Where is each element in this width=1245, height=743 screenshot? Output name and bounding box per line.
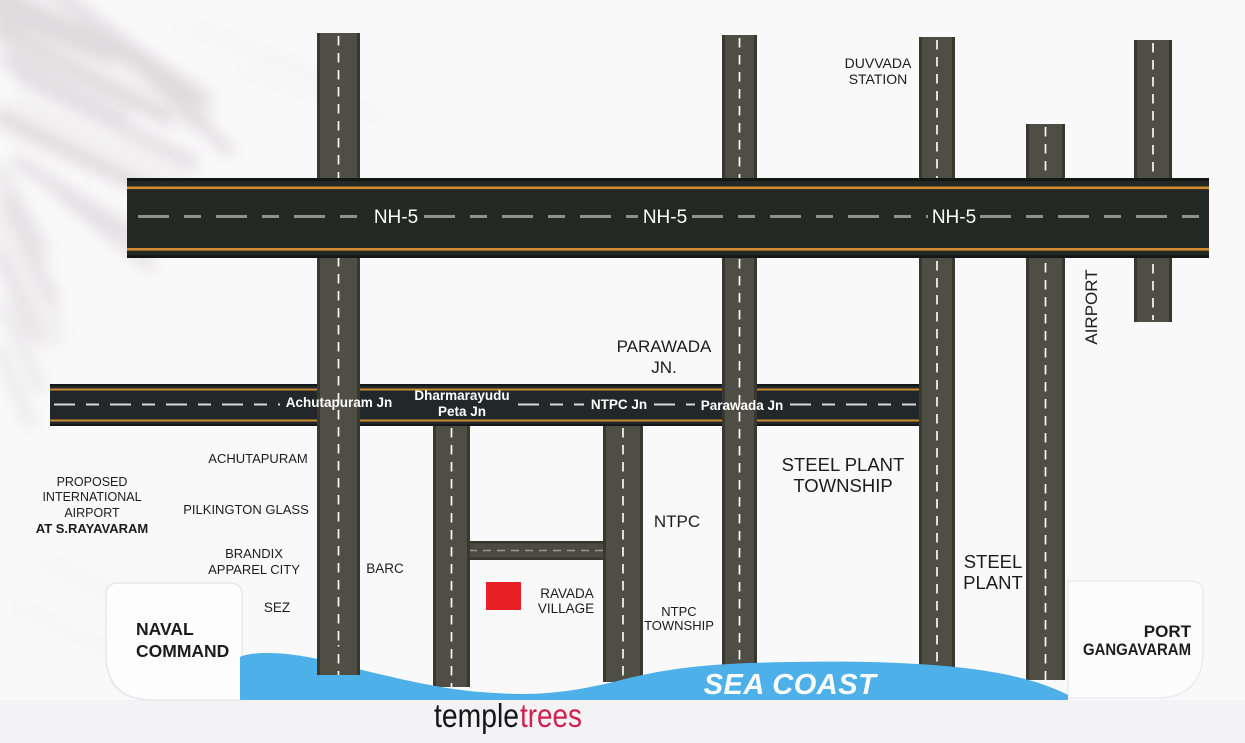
svg-text:INTERNATIONAL: INTERNATIONAL xyxy=(42,490,141,504)
svg-text:NH-5: NH-5 xyxy=(643,207,687,228)
svg-text:STEEL: STEEL xyxy=(964,551,1023,572)
svg-text:PILKINGTON GLASS: PILKINGTON GLASS xyxy=(183,502,309,517)
svg-text:SEZ: SEZ xyxy=(264,600,290,615)
svg-text:SEA COAST: SEA COAST xyxy=(704,669,878,701)
svg-text:NTPC Jn: NTPC Jn xyxy=(591,397,647,412)
svg-text:TOWNSHIP: TOWNSHIP xyxy=(644,618,714,633)
svg-text:NH-5: NH-5 xyxy=(374,207,418,228)
svg-text:STATION: STATION xyxy=(849,71,908,87)
svg-text:Peta Jn: Peta Jn xyxy=(438,404,486,419)
svg-text:VILLAGE: VILLAGE xyxy=(538,601,594,616)
svg-text:COMMAND: COMMAND xyxy=(136,641,229,661)
svg-text:PORT: PORT xyxy=(1144,622,1192,641)
svg-text:Parawada Jn: Parawada Jn xyxy=(701,398,784,413)
svg-text:NH-5: NH-5 xyxy=(932,207,976,228)
svg-text:BRANDIX: BRANDIX xyxy=(225,546,283,561)
svg-text:PARAWADA: PARAWADA xyxy=(617,337,712,356)
svg-text:PLANT: PLANT xyxy=(963,572,1023,593)
svg-text:AIRPORT: AIRPORT xyxy=(64,506,120,520)
svg-text:RAVADA: RAVADA xyxy=(540,586,594,601)
svg-text:trees: trees xyxy=(520,697,582,734)
svg-text:temple: temple xyxy=(434,697,519,734)
svg-text:JN.: JN. xyxy=(651,358,677,377)
svg-text:DUVVADA: DUVVADA xyxy=(845,55,912,71)
svg-text:NTPC: NTPC xyxy=(654,512,700,531)
svg-text:TOWNSHIP: TOWNSHIP xyxy=(793,475,892,496)
svg-text:ACHUTAPURAM: ACHUTAPURAM xyxy=(208,451,307,466)
svg-text:BARC: BARC xyxy=(366,561,404,576)
svg-text:PROPOSED: PROPOSED xyxy=(57,475,128,489)
svg-text:NAVAL: NAVAL xyxy=(136,619,194,639)
svg-text:Dharmarayudu: Dharmarayudu xyxy=(414,388,509,403)
svg-text:AT S.RAYAVARAM: AT S.RAYAVARAM xyxy=(36,521,148,536)
svg-text:GANGAVARAM: GANGAVARAM xyxy=(1083,640,1191,659)
svg-text:APPAREL CITY: APPAREL CITY xyxy=(208,562,300,577)
svg-text:AIRPORT: AIRPORT xyxy=(1082,269,1101,344)
svg-text:Achutapuram Jn: Achutapuram Jn xyxy=(286,395,393,410)
svg-text:STEEL PLANT: STEEL PLANT xyxy=(782,454,905,475)
svg-text:NTPC: NTPC xyxy=(661,604,696,619)
